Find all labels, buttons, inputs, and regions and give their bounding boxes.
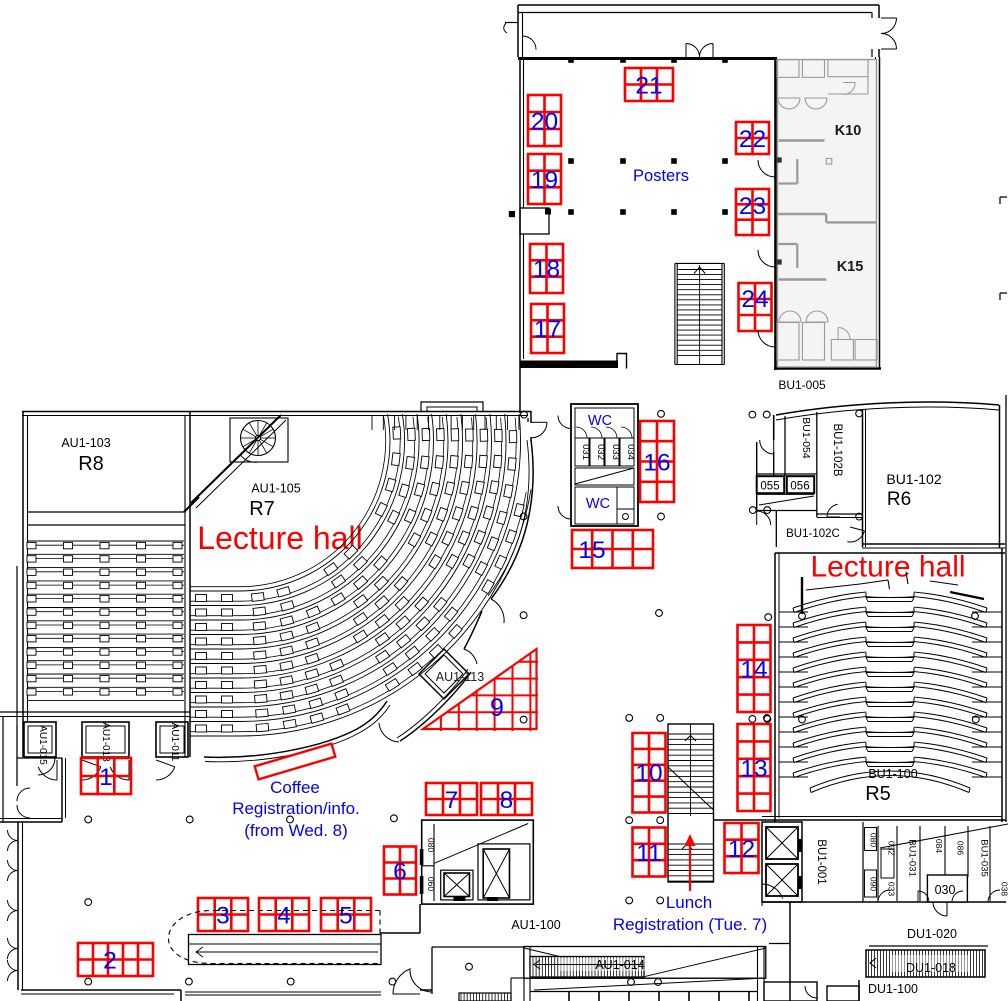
svg-text:10: 10 bbox=[635, 760, 662, 787]
svg-text:AU1-113: AU1-113 bbox=[436, 670, 484, 684]
svg-text:8: 8 bbox=[500, 787, 514, 814]
svg-text:060: 060 bbox=[426, 877, 436, 891]
svg-text:6: 6 bbox=[393, 858, 407, 885]
svg-text:BU1-102: BU1-102 bbox=[886, 471, 941, 487]
svg-text:BU1-001: BU1-001 bbox=[815, 839, 827, 884]
svg-text:14: 14 bbox=[740, 656, 767, 683]
svg-text:9: 9 bbox=[490, 694, 504, 722]
svg-text:AU1-105: AU1-105 bbox=[251, 482, 300, 496]
svg-text:R8: R8 bbox=[78, 453, 104, 475]
svg-text:084: 084 bbox=[934, 839, 944, 853]
svg-text:23: 23 bbox=[739, 193, 766, 220]
svg-text:R7: R7 bbox=[249, 498, 275, 520]
svg-text:033: 033 bbox=[610, 444, 621, 460]
svg-text:15: 15 bbox=[578, 537, 605, 564]
svg-text:AU1-011: AU1-011 bbox=[169, 723, 180, 762]
svg-text:K10: K10 bbox=[835, 123, 862, 139]
svg-text:Coffee: Coffee bbox=[270, 778, 320, 797]
svg-text:20: 20 bbox=[531, 108, 558, 135]
svg-text:22: 22 bbox=[739, 126, 766, 153]
svg-text:BU1-031: BU1-031 bbox=[907, 839, 918, 877]
svg-text:19: 19 bbox=[531, 167, 558, 194]
svg-text:R5: R5 bbox=[865, 783, 891, 805]
svg-text:24: 24 bbox=[741, 286, 768, 313]
svg-text:DU1-018: DU1-018 bbox=[906, 961, 956, 975]
svg-text:12: 12 bbox=[728, 836, 755, 863]
svg-text:090: 090 bbox=[869, 877, 879, 891]
svg-text:034: 034 bbox=[625, 444, 636, 460]
svg-text:Registration (Tue. 7): Registration (Tue. 7) bbox=[613, 915, 767, 934]
svg-text:21: 21 bbox=[635, 72, 662, 99]
svg-text:WC: WC bbox=[588, 413, 612, 429]
svg-text:3: 3 bbox=[216, 902, 230, 929]
svg-text:7: 7 bbox=[445, 787, 459, 814]
svg-text:4: 4 bbox=[277, 902, 291, 929]
svg-text:032: 032 bbox=[595, 444, 606, 460]
svg-text:AU1-103: AU1-103 bbox=[61, 436, 110, 450]
svg-text:AU1-013: AU1-013 bbox=[100, 722, 111, 762]
svg-text:033: 033 bbox=[887, 882, 897, 896]
svg-text:056: 056 bbox=[790, 481, 809, 493]
svg-text:AU1-100: AU1-100 bbox=[511, 918, 560, 932]
svg-text:031: 031 bbox=[580, 444, 591, 460]
svg-text:Lecture hall: Lecture hall bbox=[197, 520, 362, 556]
svg-text:16: 16 bbox=[643, 449, 670, 476]
svg-text:R6: R6 bbox=[887, 489, 911, 510]
svg-text:038: 038 bbox=[1000, 882, 1008, 896]
svg-text:BU1-100: BU1-100 bbox=[868, 767, 917, 781]
svg-text:080: 080 bbox=[426, 838, 436, 852]
svg-text:11: 11 bbox=[636, 840, 661, 867]
svg-text:13: 13 bbox=[740, 755, 767, 782]
svg-text:18: 18 bbox=[533, 256, 560, 283]
svg-text:080: 080 bbox=[869, 833, 879, 847]
svg-text:086: 086 bbox=[956, 841, 966, 855]
svg-text:Lunch: Lunch bbox=[666, 893, 712, 912]
svg-text:Lecture hall: Lecture hall bbox=[810, 551, 965, 584]
svg-text:030: 030 bbox=[935, 883, 956, 897]
svg-text:AU1-014: AU1-014 bbox=[595, 958, 644, 972]
svg-text:1: 1 bbox=[99, 764, 113, 791]
svg-text:BU1-054: BU1-054 bbox=[800, 417, 812, 459]
svg-text:BU1-005: BU1-005 bbox=[778, 378, 826, 392]
svg-text:Posters: Posters bbox=[633, 167, 689, 185]
svg-text:BU1-035: BU1-035 bbox=[979, 839, 990, 877]
svg-text:AU1-015: AU1-015 bbox=[37, 725, 48, 765]
svg-text:2: 2 bbox=[103, 947, 117, 974]
svg-text:BU1-102C: BU1-102C bbox=[786, 528, 840, 540]
svg-text:WC: WC bbox=[586, 496, 610, 512]
svg-text:Registration/info.: Registration/info. bbox=[232, 799, 360, 818]
svg-text:032: 032 bbox=[887, 841, 897, 855]
svg-text:K15: K15 bbox=[837, 259, 864, 275]
svg-text:(from Wed. 8): (from Wed. 8) bbox=[244, 821, 348, 840]
svg-text:DU1-100: DU1-100 bbox=[868, 982, 918, 996]
svg-text:17: 17 bbox=[534, 316, 561, 343]
svg-text:BU1-102B: BU1-102B bbox=[831, 423, 843, 476]
svg-text:DU1-020: DU1-020 bbox=[907, 927, 957, 941]
svg-text:5: 5 bbox=[339, 902, 353, 929]
svg-text:055: 055 bbox=[760, 481, 779, 493]
